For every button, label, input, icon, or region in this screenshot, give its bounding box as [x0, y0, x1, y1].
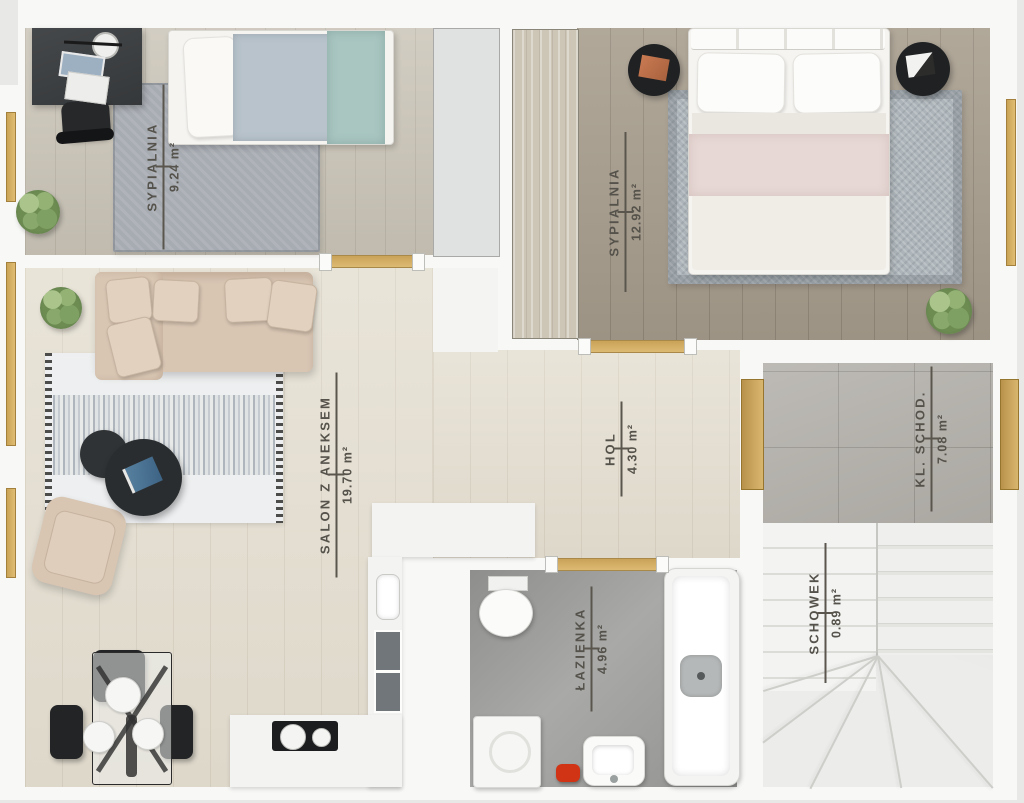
room-label-salon: SALON Z ANEKSEM 19.70 m² [318, 373, 355, 578]
bedroom1-single-bed [168, 30, 394, 145]
floor-plan: SYPIALNIA 9.24 m² SYPIALNIA 12.92 m² SAL… [0, 0, 1024, 803]
dining-table-glass [92, 652, 172, 785]
plate-icon [83, 721, 115, 753]
stair-landing-door-right [1000, 379, 1019, 490]
armchair-cushion [42, 509, 118, 586]
bathroom-sink [583, 736, 645, 786]
bed-blanket-teal [327, 31, 385, 144]
door-jamb [545, 556, 558, 573]
oven-cabinet [374, 671, 402, 713]
bedroom1-wardrobe [433, 28, 500, 257]
bedroom2-wardrobe [512, 29, 579, 339]
kitchen-counter-block [372, 503, 535, 557]
bed-duvet [692, 196, 886, 270]
bedroom1-door-threshold [330, 255, 414, 268]
bedroom2-double-bed [688, 28, 890, 275]
label-rule [825, 543, 827, 683]
toilet-bowl [479, 589, 533, 637]
door-jamb [319, 253, 332, 271]
room-label-lazienka: ŁAZIENKA 4.96 m² [573, 587, 610, 712]
stair-winders [763, 523, 993, 787]
bed-pillow [696, 52, 785, 114]
label-rule [625, 132, 627, 292]
washing-machine [473, 716, 541, 788]
sofa-pillow [152, 279, 200, 323]
plate-icon [132, 718, 164, 750]
bed-pillow [792, 52, 881, 114]
label-rule [336, 373, 338, 578]
window-living-room [6, 262, 16, 446]
laptop-keyboard [64, 71, 109, 105]
room-label-sypialnia-2: SYPIALNIA 12.92 m² [607, 132, 644, 292]
room-label-sypialnia-1: SYPIALNIA 9.24 m² [145, 85, 182, 250]
pot-icon [280, 724, 306, 750]
label-rule [931, 367, 933, 512]
rug-fringe [45, 353, 52, 523]
label-rule [163, 85, 165, 250]
sofa-pillow [266, 279, 318, 333]
washer-door-icon [489, 731, 531, 773]
label-rule [591, 587, 593, 712]
stair-winder-line [877, 656, 902, 788]
sofa [95, 272, 313, 380]
red-stool [556, 764, 580, 782]
door-jamb [412, 253, 425, 271]
art-print-icon [906, 52, 936, 78]
bathroom-door-threshold [556, 558, 658, 571]
headboard-cushions [691, 29, 885, 50]
stair-landing-floor [763, 363, 993, 523]
bed-runner-pink [689, 134, 889, 196]
living-room-plant-icon [40, 287, 82, 329]
door-jamb [684, 338, 697, 355]
room-label-kl-schod: KL. SCHOD. 7.08 m² [913, 367, 950, 512]
window-bedroom1 [6, 112, 16, 202]
book-orange-icon [638, 55, 669, 82]
plate-icon [105, 677, 141, 713]
room-label-hol: HOL 4.30 m² [603, 402, 640, 497]
drain-icon [697, 672, 705, 680]
window-bedroom2 [1006, 99, 1016, 266]
dining-chair-left [50, 705, 83, 759]
door-jamb [578, 338, 591, 355]
bedroom2-plant-icon [926, 288, 972, 334]
kitchen-bathroom-wall [402, 555, 433, 790]
stair-winder-line [877, 655, 993, 788]
window-dining [6, 488, 16, 578]
bedroom2-door-threshold [589, 340, 686, 353]
stair-landing-door-left [741, 379, 764, 490]
pot-icon [312, 728, 331, 747]
oven-cabinet [374, 630, 402, 672]
label-rule [621, 402, 623, 497]
closet-wall-block [433, 268, 498, 352]
room-label-schowek: SCHOWEK 0.89 m² [807, 543, 844, 683]
kitchen-sink [376, 574, 400, 620]
sink-basin [592, 745, 634, 775]
faucet-icon [610, 775, 618, 783]
door-jamb [656, 556, 669, 573]
bedroom1-plant-icon [16, 190, 60, 234]
bathtub [664, 568, 740, 786]
bed-blanket-blue [233, 34, 335, 141]
